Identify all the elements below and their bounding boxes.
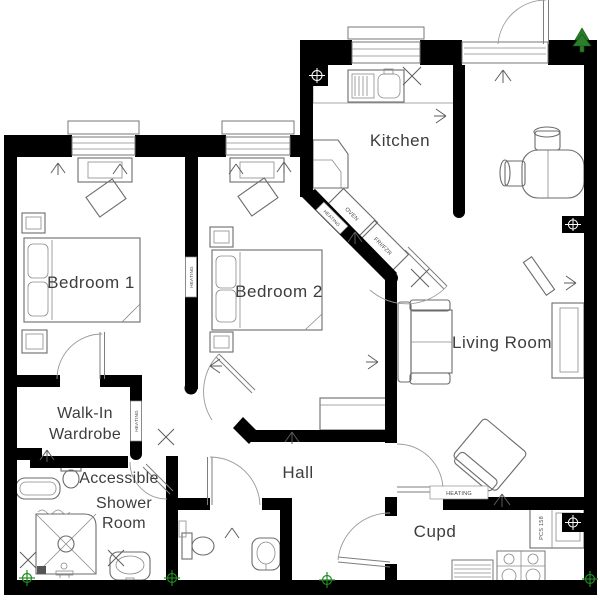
entrance-door bbox=[462, 0, 549, 63]
cupd-label: Cupd bbox=[414, 522, 457, 541]
cupd-services-unit bbox=[497, 551, 545, 585]
service-box-living-bottom bbox=[562, 513, 584, 532]
kitchen-label: Kitchen bbox=[370, 131, 430, 150]
wardrobe-label-line1: Walk-In bbox=[57, 405, 113, 422]
shower-label-line2: Shower bbox=[96, 495, 152, 512]
living-tub-chair-top bbox=[534, 127, 560, 150]
heating-label-wardrobe: HEATING bbox=[131, 401, 142, 441]
shower-basin bbox=[110, 552, 150, 583]
bedroom2-bedside-table-top bbox=[210, 227, 233, 247]
oven-label: OVEN bbox=[343, 207, 359, 223]
shower-bench bbox=[16, 478, 60, 499]
living-tub-chair-left bbox=[500, 160, 525, 186]
bedroom2-stool bbox=[238, 178, 278, 216]
wardrobe-label-line2: Wardrobe bbox=[49, 426, 121, 443]
bedroom2-dressing-table bbox=[230, 158, 284, 182]
oven-text: OVEN bbox=[343, 207, 359, 223]
living-door bbox=[397, 444, 443, 492]
living-table bbox=[522, 150, 584, 198]
bedroom2-door bbox=[204, 354, 255, 420]
kitchen-sink bbox=[348, 69, 404, 102]
living-armchair bbox=[450, 418, 528, 495]
kitchen-counter bbox=[313, 65, 453, 103]
wc-toilet bbox=[182, 533, 214, 559]
floor-plan: HEATING HEATING HEATING HEATING PCS 158 … bbox=[0, 0, 600, 608]
shower-seat bbox=[56, 563, 73, 578]
kitchen-corner-unit bbox=[313, 140, 348, 188]
living-room-label: Living Room bbox=[452, 333, 552, 352]
bedroom1-stool bbox=[86, 179, 126, 217]
kitchen-window bbox=[348, 27, 424, 63]
unit-code-text: PCS 158 bbox=[539, 516, 545, 540]
living-sofa bbox=[398, 300, 452, 384]
service-box-kitchen bbox=[306, 65, 328, 86]
bedroom2-chest-of-drawers bbox=[320, 398, 388, 430]
bedroom1-bedside-table-top bbox=[22, 213, 45, 233]
bedroom2-bedside-table-bottom bbox=[210, 332, 233, 352]
bedroom1-window bbox=[68, 121, 139, 155]
heating-label-text: HEATING bbox=[134, 410, 139, 432]
cupd-door bbox=[338, 513, 390, 567]
wc-door bbox=[208, 457, 261, 505]
bedroom2-window bbox=[222, 121, 294, 155]
shower-label-line1: Accessible bbox=[79, 470, 158, 487]
wc-basin bbox=[252, 538, 280, 570]
service-box-living-right bbox=[562, 216, 584, 233]
living-rug bbox=[523, 257, 554, 296]
bedroom1-door bbox=[57, 332, 105, 379]
bedroom1-label: Bedroom 1 bbox=[47, 273, 135, 292]
heating-label-text: HEATING bbox=[189, 266, 194, 288]
unit-code-label: PCS 158 bbox=[539, 516, 545, 540]
heating-label-living: HEATING bbox=[430, 486, 488, 499]
hall-label: Hall bbox=[282, 463, 313, 482]
bedroom1-bedside-table-bottom bbox=[22, 330, 47, 353]
bedroom2-label: Bedroom 2 bbox=[235, 282, 323, 301]
shower-label-line3: Room bbox=[102, 515, 146, 532]
living-sideboard bbox=[552, 303, 584, 378]
heating-label-text: HEATING bbox=[446, 491, 472, 497]
floor-plan-canvas: HEATING HEATING HEATING HEATING PCS 158 … bbox=[0, 0, 600, 608]
heating-label-bedroom1: HEATING bbox=[186, 257, 197, 297]
shower-tray bbox=[36, 510, 96, 574]
